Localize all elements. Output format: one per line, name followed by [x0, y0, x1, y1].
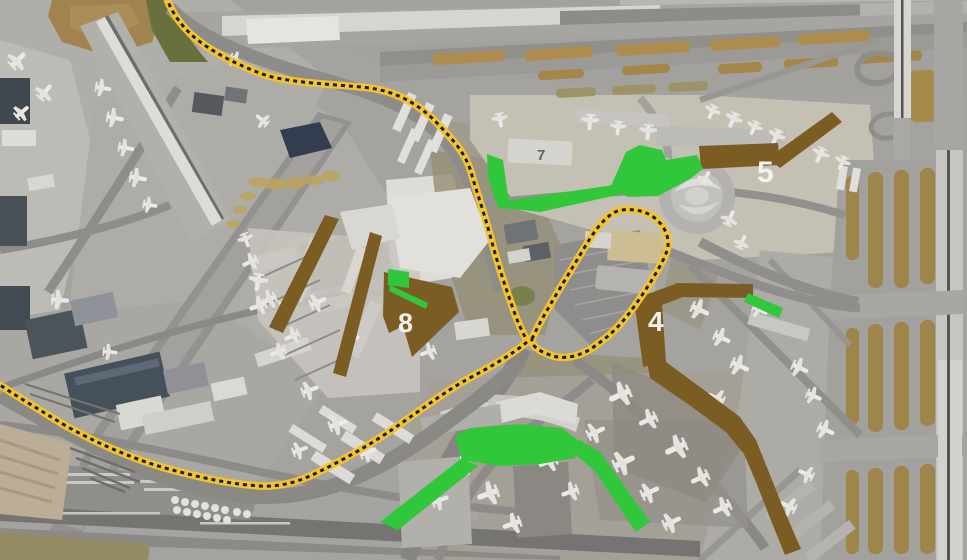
svg-text:5: 5	[757, 156, 774, 189]
svg-text:7: 7	[537, 147, 545, 164]
svg-text:8: 8	[398, 308, 413, 338]
svg-text:4: 4	[648, 306, 664, 337]
